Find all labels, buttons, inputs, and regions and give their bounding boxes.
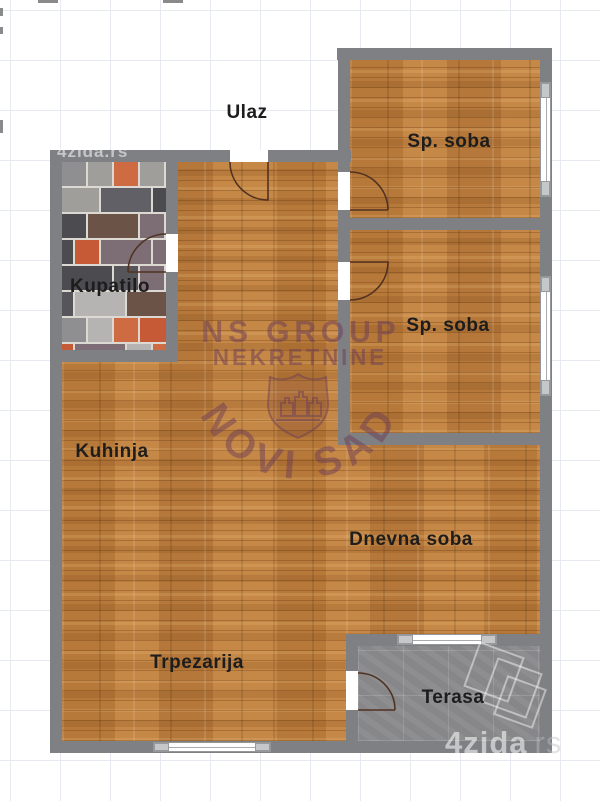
agency-shield-icon bbox=[268, 374, 328, 438]
floorplan-canvas: NS GROUP NEKRETNINE NOVI SAD bbox=[0, 0, 600, 801]
room-label-ulaz: Ulaz bbox=[226, 102, 267, 124]
site-watermark-large-suffix: rs bbox=[535, 725, 563, 760]
door-swing-terrace bbox=[358, 673, 395, 710]
site-watermark-large-name: 4zida bbox=[445, 725, 528, 760]
plan-symbols-overlay: NOVI SAD bbox=[0, 0, 600, 801]
room-label-kupatilo: Kupatilo bbox=[70, 276, 150, 298]
door-swing-bedroom1 bbox=[350, 172, 388, 210]
site-logo-icon bbox=[465, 643, 546, 728]
room-label-sp-soba-1: Sp. soba bbox=[407, 131, 490, 153]
room-label-sp-soba-2: Sp. soba bbox=[406, 315, 489, 337]
room-label-kuhinja: Kuhinja bbox=[75, 441, 148, 463]
door-swing-bedroom2 bbox=[350, 262, 388, 300]
room-label-terasa: Terasa bbox=[422, 687, 485, 709]
door-swing-entrance bbox=[230, 162, 268, 200]
door-swing-bathroom bbox=[128, 234, 166, 272]
room-label-trpezarija: Trpezarija bbox=[150, 652, 244, 674]
room-label-dnevna-soba: Dnevna soba bbox=[349, 529, 473, 551]
site-watermark-large: 4zidars bbox=[445, 725, 562, 761]
